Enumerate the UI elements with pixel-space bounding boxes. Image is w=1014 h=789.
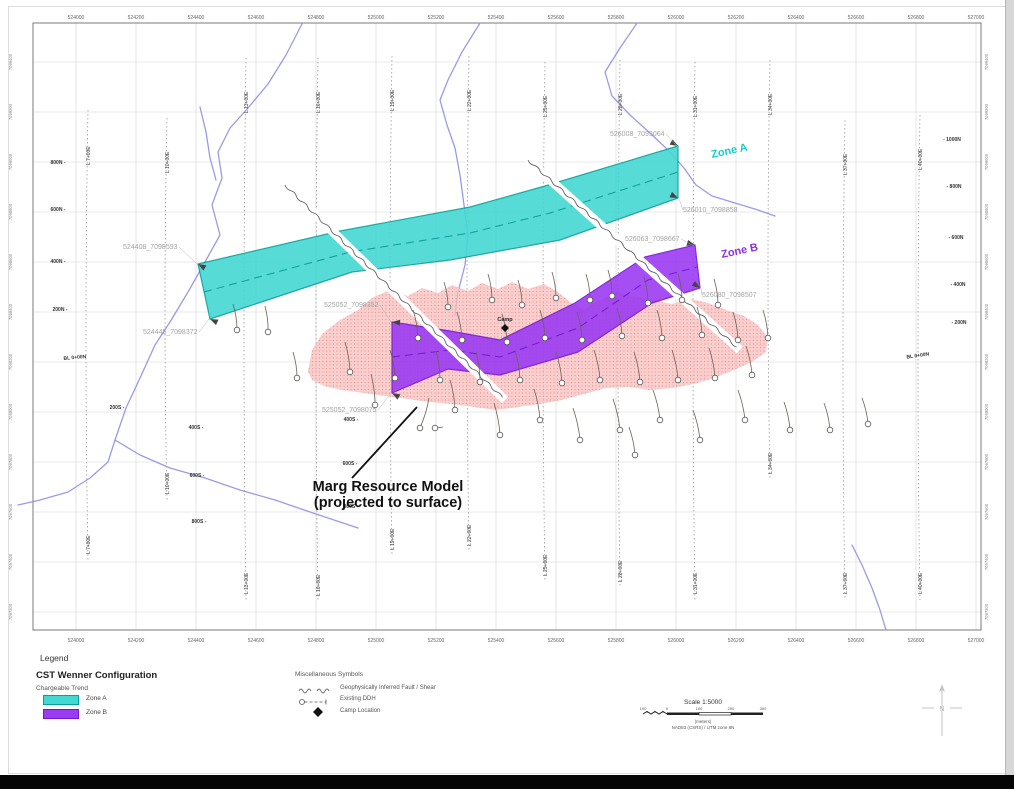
drillhole-collar xyxy=(679,297,685,303)
survey-line-label-top: L 7+00E xyxy=(86,146,92,165)
easting-label-bottom: 525400 xyxy=(488,638,505,644)
easting-label-top: 526000 xyxy=(668,15,685,21)
annotation-leader xyxy=(352,407,417,478)
baseline-label: BL 0+00N xyxy=(63,354,87,362)
northing-label-right: 7099000 xyxy=(984,153,989,170)
easting-label-top: 527000 xyxy=(968,15,985,21)
collar-coordinate-label: 524445_7098372 xyxy=(143,329,198,336)
easting-label-bottom: 525600 xyxy=(548,638,565,644)
existing-ddh-icon xyxy=(298,694,332,704)
local-grid-label: - 1000N xyxy=(943,137,961,143)
legend-cst-heading: CST Wenner Configuration xyxy=(36,670,157,681)
drillhole-collar xyxy=(657,417,663,423)
northing-label-left: 7097200 xyxy=(8,603,13,620)
easting-label-bottom: 524200 xyxy=(128,638,145,644)
easting-label-bottom: 524400 xyxy=(188,638,205,644)
easting-label-bottom: 527000 xyxy=(968,638,985,644)
drillhole-collar xyxy=(865,421,871,427)
northing-label-left: 7098600 xyxy=(8,253,13,270)
northing-label-left: 7099200 xyxy=(8,103,13,120)
survey-line-label-bottom: L 10+00E xyxy=(165,472,171,494)
drillhole-collar xyxy=(619,333,625,339)
drillhole-trace xyxy=(573,408,580,440)
collar-coordinate-label: 526008_7099064 xyxy=(610,131,665,138)
survey-line xyxy=(244,58,246,600)
easting-label-top: 524800 xyxy=(308,15,325,21)
drillhole-collar xyxy=(477,379,483,385)
drillhole-collar xyxy=(577,437,583,443)
scale-tick-0: 100 xyxy=(640,706,647,711)
map-sheet: 5240005240005242005242005244005244005246… xyxy=(0,0,1014,789)
local-grid-label: 200N - xyxy=(52,307,67,313)
survey-line-label-top: L 34+00E xyxy=(768,93,774,115)
drillhole-collar xyxy=(265,329,271,335)
drillhole-collar xyxy=(415,335,421,341)
easting-label-top: 525800 xyxy=(608,15,625,21)
collar-coordinate-label: 524408_7098593 xyxy=(123,244,178,251)
local-grid-label: 600S - xyxy=(343,461,358,467)
easting-label-bottom: 525800 xyxy=(608,638,625,644)
northing-label-left: 7097400 xyxy=(8,553,13,570)
easting-label-bottom: 526600 xyxy=(848,638,865,644)
northing-label-right: 7098200 xyxy=(984,353,989,370)
survey-line-label-bottom: L 40+00E xyxy=(918,572,924,594)
northing-label-right: 7097200 xyxy=(984,603,989,620)
drillhole-collar xyxy=(542,335,548,341)
survey-line-label-bottom: L 7+00E xyxy=(86,535,92,554)
drillhole-trace xyxy=(629,427,635,455)
legend-misc-camp-label: Camp Location xyxy=(340,708,380,714)
survey-line-label-bottom: L 34+00E xyxy=(768,452,774,474)
north-arrow-icon: N xyxy=(916,682,968,744)
drillhole-collar xyxy=(697,437,703,443)
drillhole-collar xyxy=(659,335,665,341)
drillhole-collar xyxy=(497,432,503,438)
collar-coordinate-label: 526010_7098858 xyxy=(683,207,738,214)
northing-label-left: 7098000 xyxy=(8,403,13,420)
local-grid-label: 400S - xyxy=(344,417,359,423)
drillhole-collar xyxy=(392,375,398,381)
easting-label-top: 524400 xyxy=(188,15,205,21)
easting-label-top: 525000 xyxy=(368,15,385,21)
legend-misc-fault-label: Geophysically Inferred Fault / Shear xyxy=(340,685,436,691)
zone-a-swatch-label: Zone A xyxy=(86,695,107,702)
drillhole-collar xyxy=(504,339,510,345)
drillhole-collar xyxy=(765,335,771,341)
northing-label-right: 7099200 xyxy=(984,103,989,120)
drillhole-collar xyxy=(445,304,451,310)
survey-line xyxy=(768,60,770,480)
local-grid-label: - 800N xyxy=(946,184,961,190)
drillhole-collar xyxy=(553,295,559,301)
drillhole-trace xyxy=(862,398,868,424)
survey-line-label-top: L 22+00E xyxy=(467,89,473,111)
survey-line-label-bottom: L 25+00E xyxy=(543,554,549,576)
stream xyxy=(200,107,216,180)
drillhole-collar xyxy=(489,297,495,303)
survey-line-label-bottom: L 19+00E xyxy=(390,528,396,550)
drillhole-collar xyxy=(617,427,623,433)
drillhole-collar xyxy=(579,337,585,343)
scale-tick-3: 200 xyxy=(728,706,735,711)
easting-label-top: 526800 xyxy=(908,15,925,21)
local-grid-label: - 200N xyxy=(951,320,966,326)
survey-line-label-top: L 37+00E xyxy=(843,153,849,175)
local-grid-label: 800N - xyxy=(50,160,65,166)
easting-label-bottom: 524000 xyxy=(68,638,85,644)
survey-line-label-bottom: L 37+00E xyxy=(843,572,849,594)
resource-model-annotation: Marg Resource Model xyxy=(313,479,464,495)
northing-label-right: 7098600 xyxy=(984,253,989,270)
northing-label-right: 7099400 xyxy=(984,53,989,70)
easting-label-top: 526600 xyxy=(848,15,865,21)
drillhole-trace xyxy=(613,399,620,430)
zone-a-label: Zone A xyxy=(710,142,749,161)
camp-label: Camp xyxy=(497,317,513,323)
easting-label-top: 525200 xyxy=(428,15,445,21)
northing-label-right: 7097800 xyxy=(984,453,989,470)
survey-line-label-bottom: L 28+00E xyxy=(618,560,624,582)
drillhole-collar xyxy=(452,407,458,413)
northing-label-left: 7097800 xyxy=(8,453,13,470)
easting-label-top: 524200 xyxy=(128,15,145,21)
easting-label-top: 524600 xyxy=(248,15,265,21)
easting-label-bottom: 524600 xyxy=(248,638,265,644)
easting-label-bottom: 525200 xyxy=(428,638,445,644)
scan-bottom-bar xyxy=(0,775,1014,789)
scale-datum: NAD83 (CSRS) / UTM zone 8N xyxy=(638,725,768,730)
local-grid-label: 600N - xyxy=(50,207,65,213)
legend-misc-ddh-label: Existing DDH xyxy=(340,696,376,702)
drillhole-collar xyxy=(827,427,833,433)
northing-label-left: 7098800 xyxy=(8,203,13,220)
northing-label-left: 7099000 xyxy=(8,153,13,170)
easting-label-bottom: 524800 xyxy=(308,638,325,644)
legend-cst-subheading: Chargeable Trend xyxy=(36,685,88,692)
easting-label-bottom: 526000 xyxy=(668,638,685,644)
drillhole-collar xyxy=(699,332,705,338)
survey-line xyxy=(843,120,845,600)
drillhole-collar xyxy=(749,372,755,378)
easting-label-bottom: 525000 xyxy=(368,638,385,644)
drillhole-collar xyxy=(712,375,718,381)
drillhole-collar xyxy=(587,297,593,303)
drillhole-trace xyxy=(420,398,429,428)
local-grid-label: 600S - xyxy=(190,473,205,479)
stream xyxy=(852,545,886,630)
survey-line-label-top: L 25+00E xyxy=(543,95,549,117)
drillhole-collar xyxy=(437,377,443,383)
survey-line-label-bottom: L 22+00E xyxy=(467,524,473,546)
legend-misc-heading: Miscellaneous Symbols xyxy=(295,671,363,678)
drillhole-collar xyxy=(632,452,638,458)
fault-squiggle-icon xyxy=(298,683,332,693)
survey-line xyxy=(86,110,88,560)
drillhole-collar xyxy=(597,377,603,383)
survey-line xyxy=(165,118,167,500)
survey-line-label-bottom: L 13+00E xyxy=(244,572,250,594)
drillhole-collar xyxy=(742,417,748,423)
drillhole-collar xyxy=(459,337,465,343)
drillhole-trace xyxy=(693,410,700,440)
zone-b-label: Zone B xyxy=(720,241,759,260)
collar-label-leader xyxy=(179,247,197,264)
survey-line-label-top: L 40+00E xyxy=(918,148,924,170)
drillhole-trace xyxy=(265,306,268,332)
northing-label-left: 7099400 xyxy=(8,53,13,70)
northing-label-left: 7097600 xyxy=(8,503,13,520)
collar-coordinate-label: 525052_7098075 xyxy=(322,407,377,414)
camp-diamond-icon xyxy=(306,705,340,715)
zone-b-swatch xyxy=(43,709,79,719)
northing-label-left: 7098400 xyxy=(8,303,13,320)
northing-label-right: 7098400 xyxy=(984,303,989,320)
scale-bar: 100 0 100 200 300 xyxy=(636,706,772,718)
survey-line-label-bottom: L 16+00E xyxy=(316,574,322,596)
north-arrow-n: N xyxy=(939,706,944,713)
drillhole-collar xyxy=(517,377,523,383)
local-grid-label: 400N - xyxy=(50,259,65,265)
local-grid-label: - 400N xyxy=(950,282,965,288)
drillhole-trace xyxy=(738,390,745,420)
easting-label-bottom: 526200 xyxy=(728,638,745,644)
northing-label-right: 7097600 xyxy=(984,503,989,520)
survey-line-label-top: L 19+00E xyxy=(390,89,396,111)
drillhole-collar xyxy=(637,379,643,385)
scale-tick-2: 100 xyxy=(696,706,703,711)
northing-label-right: 7098000 xyxy=(984,403,989,420)
northing-label-right: 7097400 xyxy=(984,553,989,570)
collar-coordinate-label: 526063_7098667 xyxy=(625,236,680,243)
drillhole-trace xyxy=(653,390,660,420)
zone-b-swatch-label: Zone B xyxy=(86,709,107,716)
drillhole-collar xyxy=(417,425,423,431)
drillhole-collar xyxy=(559,380,565,386)
drillhole-collar xyxy=(519,302,525,308)
drillhole-trace xyxy=(293,352,297,378)
local-grid-label: - 600N xyxy=(948,235,963,241)
resource-model-annotation: (projected to surface) xyxy=(314,495,462,511)
easting-label-bottom: 526400 xyxy=(788,638,805,644)
zone-a-swatch xyxy=(43,695,79,705)
northing-label-right: 7098800 xyxy=(984,203,989,220)
survey-line-label-top: L 28+00E xyxy=(618,93,624,115)
drillhole-collar xyxy=(609,293,615,299)
easting-label-bottom: 526800 xyxy=(908,638,925,644)
legend-title: Legend xyxy=(40,653,68,663)
survey-line-label-top: L 13+00E xyxy=(244,91,250,113)
drillhole-trace xyxy=(784,402,790,430)
stream xyxy=(440,23,480,315)
easting-label-top: 526200 xyxy=(728,15,745,21)
drillhole-collar xyxy=(787,427,793,433)
drillhole-collar xyxy=(715,302,721,308)
easting-label-top: 525400 xyxy=(488,15,505,21)
survey-line-label-top: L 16+00E xyxy=(316,91,322,113)
drillhole-trace xyxy=(824,403,830,430)
drillhole-collar xyxy=(675,377,681,383)
survey-line-label-top: L 10+00E xyxy=(165,151,171,173)
easting-label-top: 525600 xyxy=(548,15,565,21)
local-grid-label: 800S - xyxy=(192,519,207,525)
drillhole-collar xyxy=(645,300,651,306)
scale-tick-4: 300 xyxy=(760,706,767,711)
collar-coordinate-label: 526080_7098507 xyxy=(702,292,757,299)
map-canvas: 5240005240005242005242005244005244005246… xyxy=(0,0,1014,775)
scale-title: Scale 1:5000 xyxy=(638,699,768,706)
collar-label-leader xyxy=(199,319,209,332)
local-grid-label: 400S - xyxy=(189,425,204,431)
drillhole-collar xyxy=(537,417,543,423)
easting-label-top: 524000 xyxy=(68,15,85,21)
easting-label-top: 526400 xyxy=(788,15,805,21)
drillhole-collar xyxy=(735,337,741,343)
survey-line-label-bottom: L 31+00E xyxy=(693,572,699,594)
survey-line-label-top: L 31+00E xyxy=(693,95,699,117)
drillhole-collar xyxy=(234,327,240,333)
collar-coordinate-label: 525052_7098352 xyxy=(324,302,379,309)
drillhole-collar xyxy=(294,375,300,381)
scale-tick-1: 0 xyxy=(666,706,669,711)
northing-label-left: 7098200 xyxy=(8,353,13,370)
drillhole-collar xyxy=(347,369,353,375)
local-grid-label: 200S - xyxy=(110,405,125,411)
scan-edge-strip xyxy=(1005,0,1014,776)
scale-units: (meters) xyxy=(638,719,768,724)
drillhole-collar xyxy=(432,425,438,431)
